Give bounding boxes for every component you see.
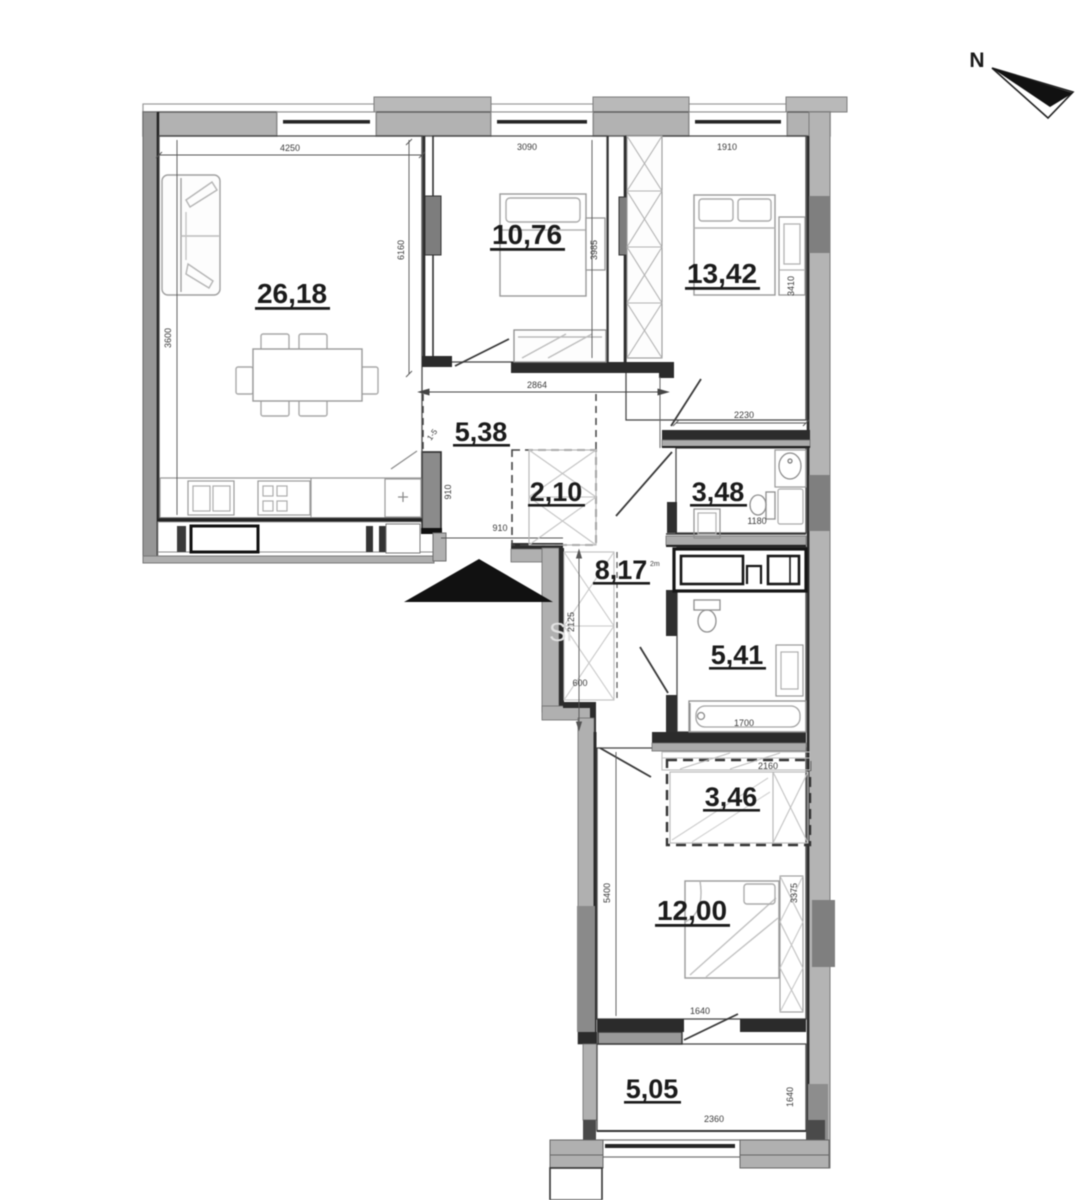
- svg-text:3375: 3375: [789, 883, 799, 903]
- svg-text:10,76: 10,76: [492, 219, 562, 250]
- svg-text:5,05: 5,05: [626, 1074, 679, 1104]
- svg-text:2230: 2230: [734, 410, 754, 420]
- svg-text:3,48: 3,48: [692, 477, 745, 507]
- svg-text:5400: 5400: [602, 883, 612, 903]
- svg-text:1700: 1700: [734, 718, 754, 728]
- svg-text:4250: 4250: [280, 143, 300, 153]
- svg-text:3410: 3410: [786, 276, 796, 296]
- svg-text:2864: 2864: [527, 380, 547, 390]
- svg-text:3090: 3090: [517, 142, 537, 152]
- svg-text:1640: 1640: [785, 1087, 795, 1107]
- svg-text:600: 600: [572, 678, 587, 688]
- svg-text:2160: 2160: [758, 761, 778, 771]
- svg-text:1640: 1640: [690, 1006, 710, 1016]
- svg-text:26,18: 26,18: [257, 278, 327, 309]
- svg-text:13,42: 13,42: [687, 258, 757, 289]
- svg-text:910: 910: [443, 484, 453, 499]
- svg-text:N: N: [969, 49, 984, 72]
- svg-text:2,10: 2,10: [530, 477, 583, 507]
- svg-text:5,38: 5,38: [455, 417, 508, 447]
- svg-text:2m: 2m: [650, 561, 660, 568]
- svg-text:3985: 3985: [589, 240, 599, 260]
- svg-text:910: 910: [492, 523, 507, 533]
- svg-text:12,00: 12,00: [657, 895, 727, 926]
- svg-text:2360: 2360: [704, 1114, 724, 1124]
- svg-text:3600: 3600: [163, 328, 173, 348]
- svg-text:8,17: 8,17: [595, 555, 648, 585]
- svg-text:5,41: 5,41: [711, 640, 764, 670]
- svg-text:2125: 2125: [566, 612, 576, 632]
- svg-text:6160: 6160: [396, 240, 406, 260]
- svg-text:3,46: 3,46: [705, 782, 758, 812]
- svg-text:1910: 1910: [717, 142, 737, 152]
- svg-text:1180: 1180: [747, 516, 766, 526]
